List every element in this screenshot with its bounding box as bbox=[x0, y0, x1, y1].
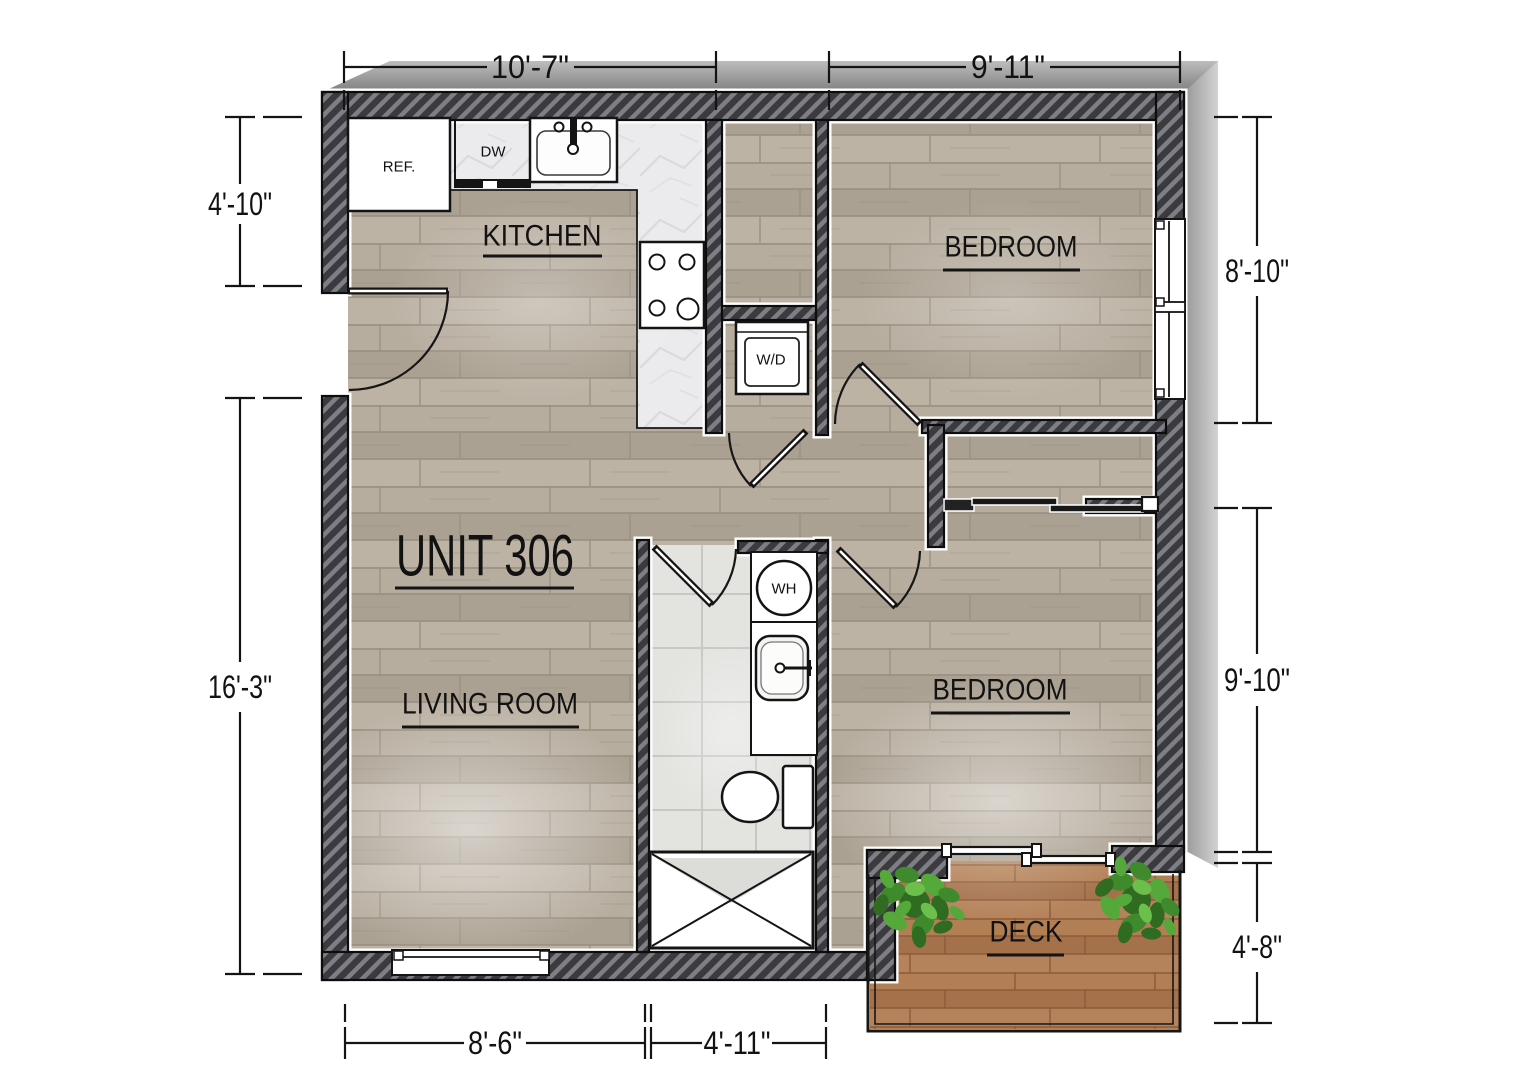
dim-left-lower: 16'-3" bbox=[208, 398, 302, 974]
stove bbox=[640, 242, 704, 328]
unit-label: UNIT 306 bbox=[396, 524, 574, 589]
wall-closet-left bbox=[928, 425, 944, 547]
shower bbox=[650, 852, 813, 948]
burner-icon bbox=[678, 299, 699, 320]
wall-kitchen-right bbox=[706, 120, 722, 433]
bathroom-sink bbox=[756, 636, 812, 700]
dim-bottom-right: 4'-11" bbox=[651, 1004, 826, 1061]
dim-right-middle: 9'-10" bbox=[1214, 508, 1290, 852]
wall-right bbox=[1156, 92, 1184, 852]
dishwasher-label: DW bbox=[481, 144, 507, 161]
dim-label: 9'-10" bbox=[1224, 662, 1290, 698]
burner-icon bbox=[650, 255, 665, 270]
refrigerator-label: REF. bbox=[383, 159, 416, 176]
bedroom-top-label: BEDROOM bbox=[945, 231, 1078, 264]
washer-dryer-label: W/D bbox=[756, 352, 785, 369]
dim-label: 4'-11" bbox=[704, 1025, 771, 1061]
floor-plan-page: KITCHEN BEDROOM UNIT 306 LIVING ROOM BED… bbox=[0, 0, 1528, 1080]
kitchen-label: KITCHEN bbox=[483, 220, 602, 253]
dim-label: 16'-3" bbox=[208, 669, 272, 705]
bedroom1-window bbox=[1155, 219, 1185, 399]
wall-bedroom1-left bbox=[816, 120, 828, 435]
wall-top bbox=[322, 92, 1184, 120]
deck-label: DECK bbox=[990, 916, 1063, 949]
dim-label: 10'-7" bbox=[491, 49, 569, 85]
burner-icon bbox=[680, 255, 695, 270]
dim-label: 8'-10" bbox=[1225, 253, 1289, 289]
dim-label: 4'-10" bbox=[208, 186, 272, 222]
floor-plan-drawing: KITCHEN BEDROOM UNIT 306 LIVING ROOM BED… bbox=[0, 0, 1528, 1080]
dim-left-upper: 4'-10" bbox=[208, 117, 302, 286]
living-room-label: LIVING ROOM bbox=[402, 688, 578, 721]
burner-icon bbox=[650, 301, 665, 316]
right-extrusion-shadow bbox=[1184, 61, 1218, 868]
dim-label: 9'-11" bbox=[971, 49, 1045, 85]
bedroom-right-label: BEDROOM bbox=[933, 674, 1068, 707]
living-room-window bbox=[392, 950, 549, 975]
dim-right-upper: 8'-10" bbox=[1214, 117, 1289, 423]
dim-label: 4'-8" bbox=[1232, 929, 1282, 965]
kitchen-sink bbox=[530, 118, 617, 182]
wall-bathroom-left bbox=[637, 540, 649, 952]
top-extrusion-shadow bbox=[322, 61, 1218, 92]
wall-laundry-top bbox=[722, 306, 816, 320]
dim-right-lower: 4'-8" bbox=[1214, 863, 1282, 1023]
wall-left-upper bbox=[322, 92, 348, 293]
dim-label: 8'-6" bbox=[468, 1025, 522, 1061]
faucet-icon bbox=[570, 119, 577, 146]
dishwasher-handle bbox=[483, 181, 497, 188]
water-heater-label: WH bbox=[772, 581, 797, 598]
wall-bedroom1-bottom bbox=[922, 420, 1166, 433]
wall-left-lower bbox=[322, 396, 348, 980]
dim-bottom-left: 8'-6" bbox=[345, 1004, 645, 1061]
